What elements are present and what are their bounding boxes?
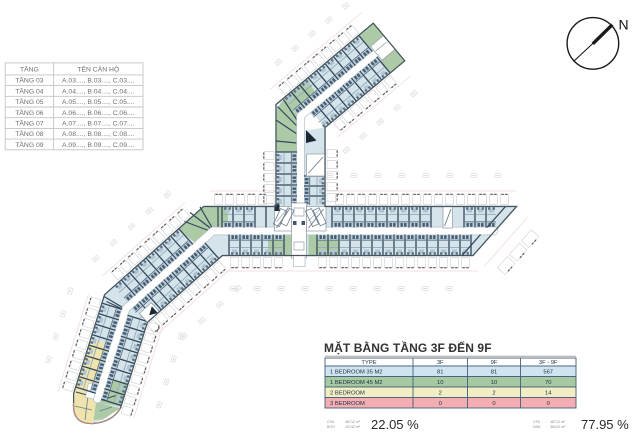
- svg-text:81: 81: [491, 369, 497, 375]
- svg-text:2: 2: [492, 390, 495, 396]
- svg-text:A.03...., B.03...., C.03....: A.03...., B.03...., C.03....: [62, 78, 135, 85]
- svg-text:A.07...., B.07...., C.07....: A.07...., B.07...., C.07....: [62, 121, 135, 128]
- svg-text:2: 2: [439, 390, 442, 396]
- svg-text:1 BEDROOM 45 M2: 1 BEDROOM 45 M2: [330, 380, 383, 386]
- svg-text:NSA: NSA: [533, 425, 541, 429]
- svg-text:MẶT BẰNG TẦNG 3F ĐẾN 9F: MẶT BẰNG TẦNG 3F ĐẾN 9F: [324, 340, 492, 355]
- svg-text:70: 70: [545, 380, 551, 386]
- svg-text:2 BEDROOM: 2 BEDROOM: [330, 390, 365, 396]
- svg-text:36412 m²: 36412 m²: [550, 425, 566, 429]
- svg-text:14: 14: [545, 390, 552, 396]
- svg-text:0: 0: [439, 401, 442, 407]
- svg-text:A.09...., B.09...., C.09....: A.09...., B.09...., C.09....: [62, 142, 135, 149]
- svg-text:46712 m²: 46712 m²: [550, 420, 566, 424]
- svg-text:10742 m²: 10742 m²: [345, 425, 361, 429]
- svg-text:BOH: BOH: [327, 425, 335, 429]
- svg-text:567: 567: [543, 369, 553, 375]
- svg-text:0: 0: [492, 401, 495, 407]
- svg-text:9F: 9F: [491, 360, 498, 366]
- svg-text:TYPE: TYPE: [361, 360, 376, 366]
- svg-text:N: N: [619, 17, 629, 33]
- svg-text:81: 81: [437, 369, 443, 375]
- svg-text:CFA: CFA: [327, 420, 335, 424]
- svg-text:TÊN CĂN HỘ: TÊN CĂN HỘ: [77, 64, 119, 73]
- svg-text:A.08...., B.08...., C.08....: A.08...., B.08...., C.08....: [62, 131, 135, 138]
- svg-text:A.06...., B.06...., C.06....: A.06...., B.06...., C.06....: [62, 110, 135, 117]
- svg-text:46712 m²: 46712 m²: [345, 420, 361, 424]
- svg-text:10: 10: [437, 380, 443, 386]
- svg-text:1 BEDROOM 35 M2: 1 BEDROOM 35 M2: [330, 369, 383, 375]
- svg-text:3F - 9F: 3F - 9F: [539, 360, 558, 366]
- svg-text:22.05 %: 22.05 %: [371, 417, 419, 432]
- svg-text:3F: 3F: [437, 360, 444, 366]
- svg-text:77.95 %: 77.95 %: [581, 417, 629, 432]
- svg-text:A.04...., B.04...., C.04....: A.04...., B.04...., C.04....: [62, 88, 135, 95]
- svg-text:CFA: CFA: [533, 420, 541, 424]
- svg-text:A.05...., B.05...., C.05....: A.05...., B.05...., C.05....: [62, 99, 135, 106]
- svg-text:0: 0: [547, 401, 550, 407]
- svg-text:3 BEDROOM: 3 BEDROOM: [330, 401, 365, 407]
- svg-text:10: 10: [491, 380, 497, 386]
